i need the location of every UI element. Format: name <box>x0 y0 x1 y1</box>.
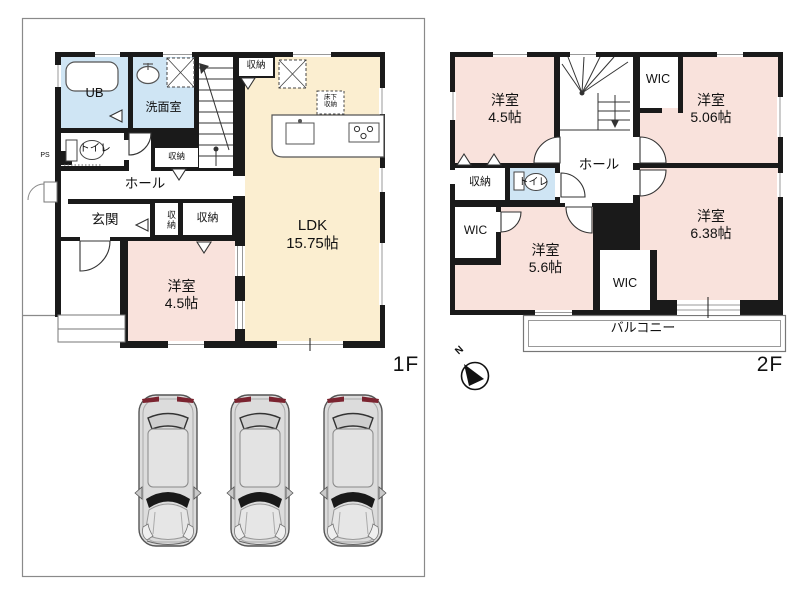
label-ldk: LDK 15.75帖 <box>250 217 375 253</box>
car-icon-2 <box>227 395 293 546</box>
label-floor-2f: 2F <box>750 352 790 377</box>
label-storage-under-stairs: 収納 <box>155 151 198 161</box>
label-ub: UB <box>61 85 128 101</box>
label-toilet-2f: トイレ <box>512 177 555 189</box>
label-storage-ldk: 収納 <box>238 60 274 71</box>
refrigerator-space-icon <box>279 60 306 88</box>
label-storage-2f: 収納 <box>455 176 505 189</box>
kitchen-counter <box>272 115 384 157</box>
label-toilet-1f: トイレ <box>66 142 124 155</box>
label-bedroom-506: 洋室 5.06帖 <box>655 92 767 126</box>
label-entrance: 玄関 <box>70 212 140 228</box>
washer-space-icon <box>167 58 194 87</box>
label-bedroom-45: 洋室 4.5帖 <box>455 92 555 126</box>
car-icon-1 <box>135 395 201 546</box>
parking-cars <box>135 395 386 546</box>
label-balcony: バルコニー <box>563 320 723 336</box>
car-icon-3 <box>320 395 386 546</box>
label-bedroom-638: 洋室 6.38帖 <box>650 208 772 242</box>
label-bedroom-56: 洋室 5.6帖 <box>498 242 593 276</box>
label-hall-2f: ホール <box>563 157 635 173</box>
label-hall-1f: ホール <box>75 176 215 192</box>
label-storage-entrance: 収納 <box>183 212 232 225</box>
label-washroom: 洗面室 <box>133 100 194 114</box>
stove-icon <box>349 123 379 142</box>
label-floor-1f: 1F <box>386 352 426 377</box>
label-wic-bottom: WIC <box>600 276 650 291</box>
label-ps: PS <box>34 152 56 160</box>
label-wic-top: WIC <box>637 72 679 87</box>
floorplan-canvas: UB 洗面室 トイレ PS 収納 ホール 玄関 収納 収納 収納 床下 収納 L… <box>0 0 800 598</box>
label-wic-left: WIC <box>455 223 496 237</box>
room-ldk <box>245 57 380 341</box>
label-storage-vertical: 収納 <box>158 205 176 235</box>
compass-icon <box>462 363 489 390</box>
label-underfloor-storage: 床下 収納 <box>317 94 344 109</box>
meter-box <box>44 182 57 202</box>
label-bedroom-1f: 洋室 4.5帖 <box>128 278 235 312</box>
